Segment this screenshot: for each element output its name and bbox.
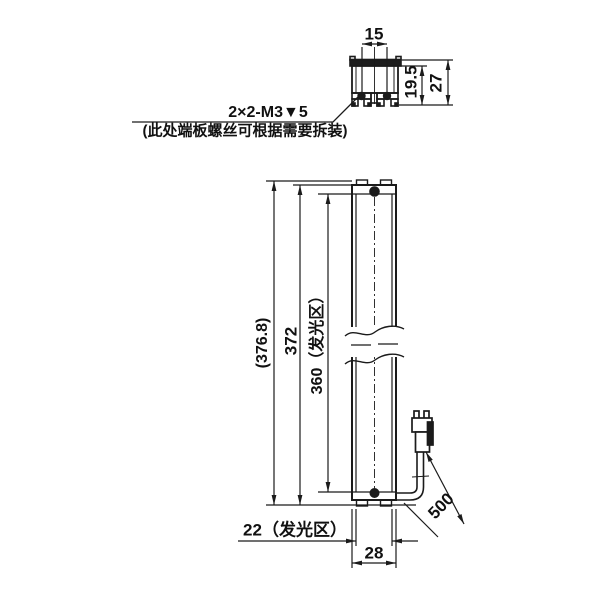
dim-body-length-label: 372 <box>283 327 300 355</box>
cable-connector <box>396 411 464 537</box>
dim-slot-spacing-label: 15 <box>365 26 384 43</box>
front-view <box>343 180 406 506</box>
technical-drawing-canvas: 15 19.5 27 2×2-M3▼5 (此处端板螺丝可根据需要拆装) (376… <box>0 0 600 600</box>
diffuser-cap <box>350 60 401 67</box>
mounting-feet <box>352 93 398 106</box>
dim-overall-length-label: (376.8) <box>255 318 271 369</box>
front-screw-bottom <box>371 489 379 497</box>
note-callout-label: 2×2-M3▼5 <box>228 105 307 121</box>
front-screw-top <box>370 187 379 196</box>
dim-inner-height-label: 19.5 <box>403 65 420 98</box>
dim-emitting-length-label: 360（发光区） <box>310 288 326 395</box>
end-plate-screw-right <box>384 93 391 100</box>
drawing-svg <box>0 0 600 600</box>
dim-emitting-width-label: 22（发光区） <box>243 522 347 539</box>
end-plate-screw-left <box>358 93 365 100</box>
connector-latch <box>428 422 434 445</box>
cross-section-view <box>350 57 401 107</box>
cable-inner <box>396 452 417 493</box>
cable-length-dimension <box>404 452 464 537</box>
dim-overall-width-label: 28 <box>365 545 384 562</box>
dim-overall-height-label: 27 <box>428 74 445 93</box>
connector <box>412 411 433 452</box>
note-description-label: (此处端板螺丝可根据需要拆装) <box>143 124 348 139</box>
